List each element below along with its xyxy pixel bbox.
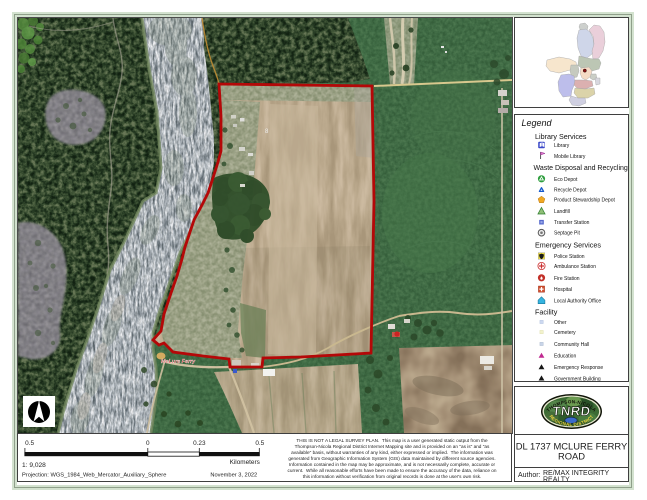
svg-text:1: 9,028: 1: 9,028 [22,462,46,469]
svg-text:Facility: Facility [535,308,558,317]
svg-text:Government Building: Government Building [554,376,601,381]
svg-text:Transfer Station: Transfer Station [554,220,590,226]
svg-text:Recycle Depot: Recycle Depot [554,187,587,193]
svg-text:REALTY: REALTY [543,477,570,482]
svg-text:Police Station: Police Station [554,254,585,260]
svg-text:Kilometers: Kilometers [230,459,260,466]
svg-text:0.5: 0.5 [255,440,264,447]
svg-text:Landfill: Landfill [554,209,570,215]
svg-text:Fire Station: Fire Station [554,276,580,282]
svg-text:Local Authority Office: Local Authority Office [554,299,601,305]
svg-text:Hospital: Hospital [554,287,572,293]
svg-text:Eco Depot: Eco Depot [554,177,578,183]
svg-text:Septage Pit: Septage Pit [554,231,580,237]
svg-text:Product Stewardship Depot: Product Stewardship Depot [554,198,615,204]
svg-text:Ambulance Station: Ambulance Station [554,264,596,270]
svg-text:0.5: 0.5 [25,440,34,447]
svg-text:Emergency Services: Emergency Services [535,241,601,250]
svg-text:Emergency Response: Emergency Response [554,365,603,371]
svg-text:McLure Ferry: McLure Ferry [161,359,196,365]
svg-text:November 3, 2022: November 3, 2022 [210,473,257,479]
svg-text:ROAD: ROAD [558,451,585,462]
svg-text:Library Services: Library Services [535,132,587,141]
svg-text:Library: Library [554,143,570,149]
svg-text:Legend: Legend [522,118,553,128]
svg-text:Waste Disposal and Recycling: Waste Disposal and Recycling [534,165,628,172]
svg-text:Education: Education [554,354,576,360]
svg-text:Community Hall: Community Hall [554,342,589,348]
svg-text:0: 0 [146,440,150,447]
svg-text:Mobile Library: Mobile Library [554,154,586,160]
svg-text:Author:: Author: [518,472,541,479]
svg-text:Other: Other [554,320,567,326]
svg-text:TNRD: TNRD [552,404,592,419]
svg-text:Projection: WGS_1984_Web_Merca: Projection: WGS_1984_Web_Mercator_Auxili… [22,473,166,479]
svg-text:Cemetery: Cemetery [554,330,576,336]
svg-text:0.23: 0.23 [193,440,206,447]
